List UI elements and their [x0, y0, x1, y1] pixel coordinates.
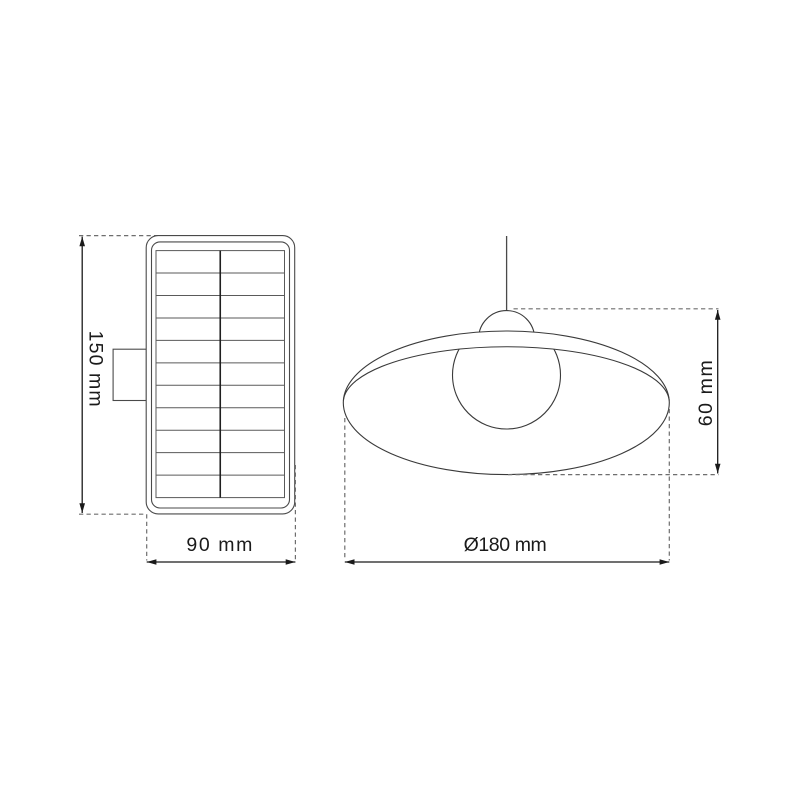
svg-text:90 mm: 90 mm — [186, 534, 254, 556]
svg-text:60 mm: 60 mm — [695, 359, 717, 427]
svg-text:Ø180 mm: Ø180 mm — [464, 534, 547, 556]
svg-text:150 mm: 150 mm — [84, 331, 106, 408]
